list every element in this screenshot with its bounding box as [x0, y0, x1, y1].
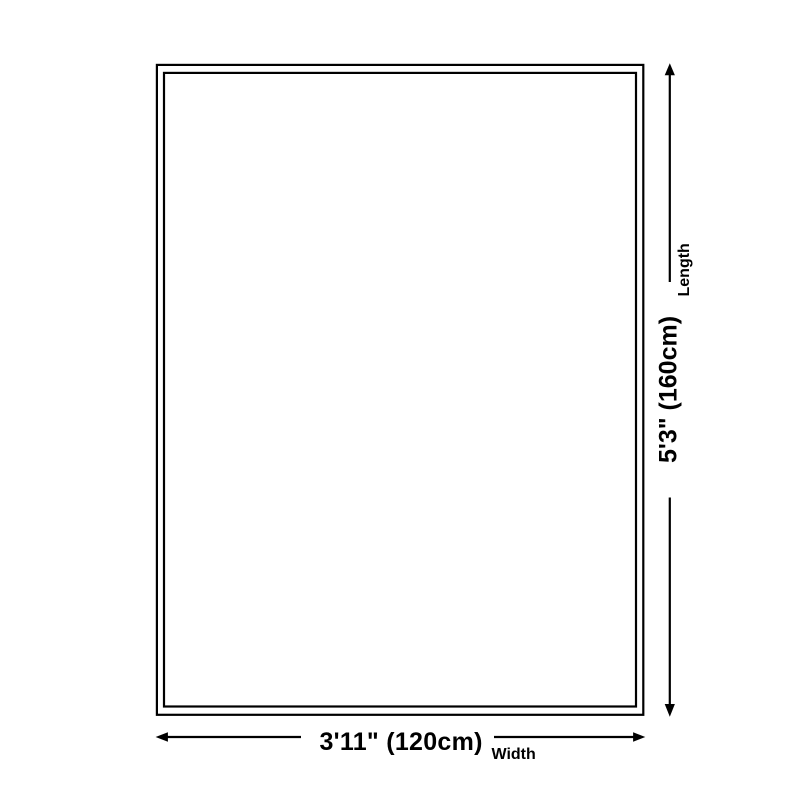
svg-text:5'3" (160cm): 5'3" (160cm) — [655, 316, 683, 463]
svg-text:3'11" (120cm): 3'11" (120cm) — [320, 728, 483, 756]
svg-text:Width: Width — [492, 746, 536, 763]
svg-text:Length: Length — [676, 243, 693, 296]
